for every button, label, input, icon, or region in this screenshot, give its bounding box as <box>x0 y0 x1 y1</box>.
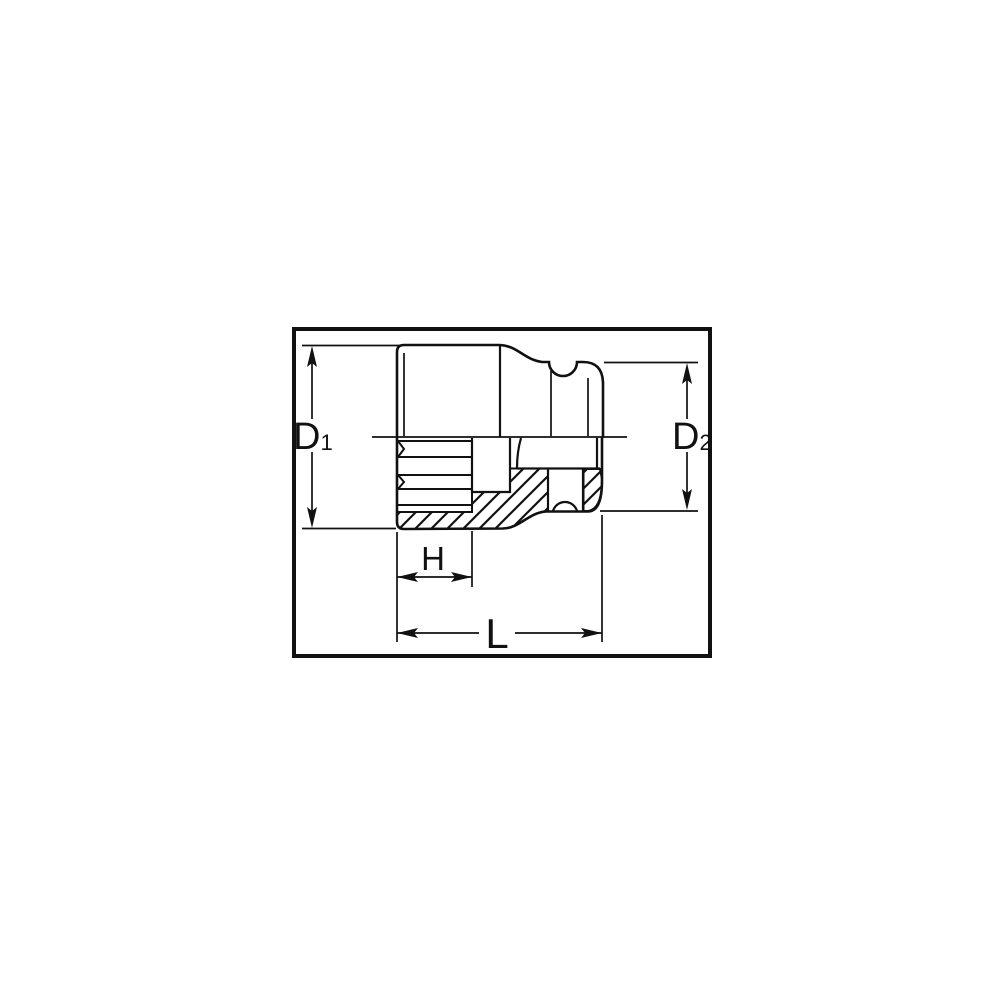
broach-tooth <box>398 441 404 457</box>
socket-drawing <box>372 345 627 529</box>
dimension-l: L <box>397 515 602 657</box>
socket-top-outline <box>397 345 603 437</box>
diagram-svg: D1 D2 H L <box>0 0 1000 1000</box>
label-h: H <box>421 540 445 577</box>
broach-tooth <box>398 475 404 489</box>
broach-lines <box>398 441 472 512</box>
pin-groove-arc <box>553 502 577 511</box>
label-d1: D1 <box>293 416 333 458</box>
dimension-h: H <box>397 531 472 587</box>
socket-section-outline <box>397 437 602 529</box>
label-l: L <box>485 610 508 657</box>
socket-dimension-diagram: D1 D2 H L <box>0 0 1000 1000</box>
label-d2: D2 <box>672 416 712 458</box>
